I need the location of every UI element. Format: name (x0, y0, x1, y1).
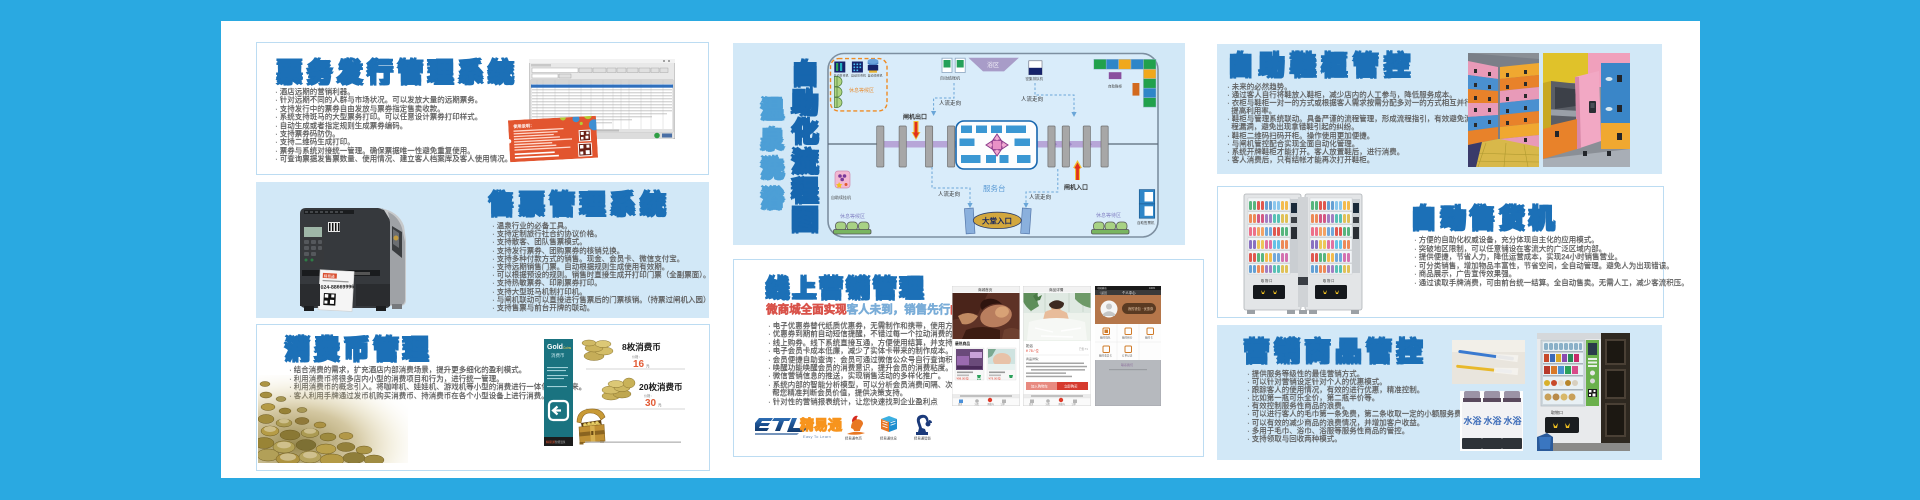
svg-text:自动领币机: 自动领币机 (868, 73, 883, 78)
svg-text:水浴: 水浴 (1464, 415, 1483, 426)
svg-text:元: 元 (658, 403, 662, 407)
svg-text:〈返回: 〈返回 (1098, 290, 1107, 295)
svg-text:024-88669996: 024-88669996 (321, 284, 355, 291)
svg-text:8枚消费币: 8枚消费币 (622, 342, 661, 352)
svg-text:我的钱包: 我的钱包 (1100, 336, 1111, 340)
svg-text:服务台: 服务台 (983, 183, 1006, 193)
svg-text:精易通智能: 精易通智能 (914, 436, 932, 441)
svg-text:16: 16 (633, 359, 645, 370)
svg-text:¥98.00/位: ¥98.00/位 (957, 377, 969, 381)
svg-text:大堂入口: 大堂入口 (982, 216, 1012, 226)
svg-text:闸机入口: 闸机入口 (1064, 184, 1088, 192)
svg-text:精易通: 精易通 (324, 273, 335, 279)
svg-text:智能温泉: 智能温泉 (555, 440, 566, 444)
svg-text:商品详情: 商品详情 (1049, 287, 1064, 292)
svg-text:联系我们: 联系我们 (1121, 362, 1133, 367)
svg-text:人流走向: 人流走向 (938, 190, 960, 198)
svg-text:闸机出口: 闸机出口 (903, 113, 927, 121)
svg-text:中国移动: 中国移动 (1097, 286, 1107, 290)
svg-text:取 物 口: 取 物 口 (1261, 278, 1272, 283)
svg-text:最热商品: 最热商品 (955, 341, 970, 346)
svg-text:自助鞋柜: 自助鞋柜 (1108, 84, 1123, 89)
svg-text:¥78.00/位: ¥78.00/位 (989, 377, 1001, 381)
svg-text:浴区: 浴区 (987, 61, 999, 69)
svg-text:商品详情：: 商品详情： (1026, 356, 1041, 361)
svg-text:我的钱包 · 优惠券: 我的钱包 · 优惠券 (1128, 306, 1154, 311)
svg-text:水浴: 水浴 (1484, 415, 1503, 426)
svg-text:精易通: 精易通 (800, 417, 842, 433)
svg-text:立即购买: 立即购买 (1064, 384, 1078, 389)
svg-text:精易通信息: 精易通信息 (880, 436, 898, 441)
svg-text:30: 30 (645, 398, 657, 409)
svg-text:人流走向: 人流走向 (1029, 193, 1051, 201)
svg-text:我的卡: 我的卡 (1145, 336, 1153, 340)
svg-text:自助售票机: 自助售票机 (1137, 220, 1155, 225)
svg-text:休息等候区: 休息等候区 (840, 213, 865, 220)
svg-text:元: 元 (646, 364, 650, 368)
svg-text:Coins: Coins (563, 346, 572, 350)
svg-text:订单记录: 订单记录 (1122, 354, 1133, 358)
svg-text:¥ 78 / 位: ¥ 78 / 位 (1026, 348, 1039, 353)
svg-text:取 物 口: 取 物 口 (1323, 278, 1334, 283)
svg-text:奶浴: 奶浴 (1026, 343, 1033, 348)
svg-text:消费币: 消费币 (551, 352, 565, 359)
svg-text:休息等待区: 休息等待区 (1096, 212, 1121, 219)
svg-text:商城首页: 商城首页 (978, 287, 993, 292)
svg-text:我的积分: 我的积分 (1122, 336, 1133, 340)
svg-text:自助续挂机: 自助续挂机 (831, 194, 851, 200)
svg-text:已售:71: 已售:71 (1079, 347, 1088, 351)
svg-text:精易通电商: 精易通电商 (845, 436, 863, 441)
svg-text:100%: 100% (1149, 287, 1156, 290)
svg-text:人流走向: 人流走向 (1021, 95, 1043, 103)
svg-text:人流走向: 人流走向 (939, 99, 961, 107)
svg-text:自动结账机: 自动结账机 (940, 75, 960, 81)
svg-text:20枚消费币: 20枚消费币 (639, 382, 683, 392)
svg-text:我的会员卡: 我的会员卡 (1099, 354, 1112, 358)
svg-text:水浴: 水浴 (1504, 415, 1523, 426)
svg-text:休息等候区: 休息等候区 (849, 87, 874, 94)
svg-text:加入购物车: 加入购物车 (1031, 384, 1049, 389)
svg-text:精易通: 精易通 (546, 439, 555, 444)
svg-text:自动兑币机: 自动兑币机 (851, 73, 866, 78)
svg-text:取物口: 取物口 (1551, 409, 1563, 415)
svg-text:个人中心: 个人中心 (1122, 290, 1136, 295)
svg-text:Easy To Learn: Easy To Learn (803, 434, 831, 439)
svg-text:Gold: Gold (547, 344, 563, 351)
svg-text:密集排队机: 密集排队机 (1026, 76, 1044, 81)
